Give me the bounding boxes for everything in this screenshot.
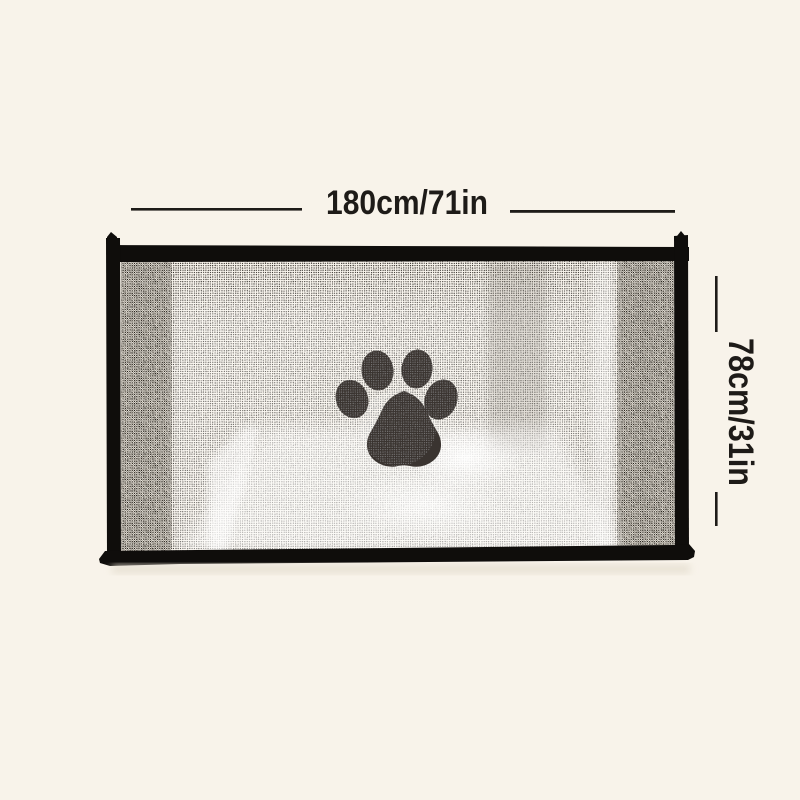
svg-text:180cm/71in: 180cm/71in [326, 184, 488, 222]
svg-text:78cm/31in: 78cm/31in [721, 338, 760, 486]
